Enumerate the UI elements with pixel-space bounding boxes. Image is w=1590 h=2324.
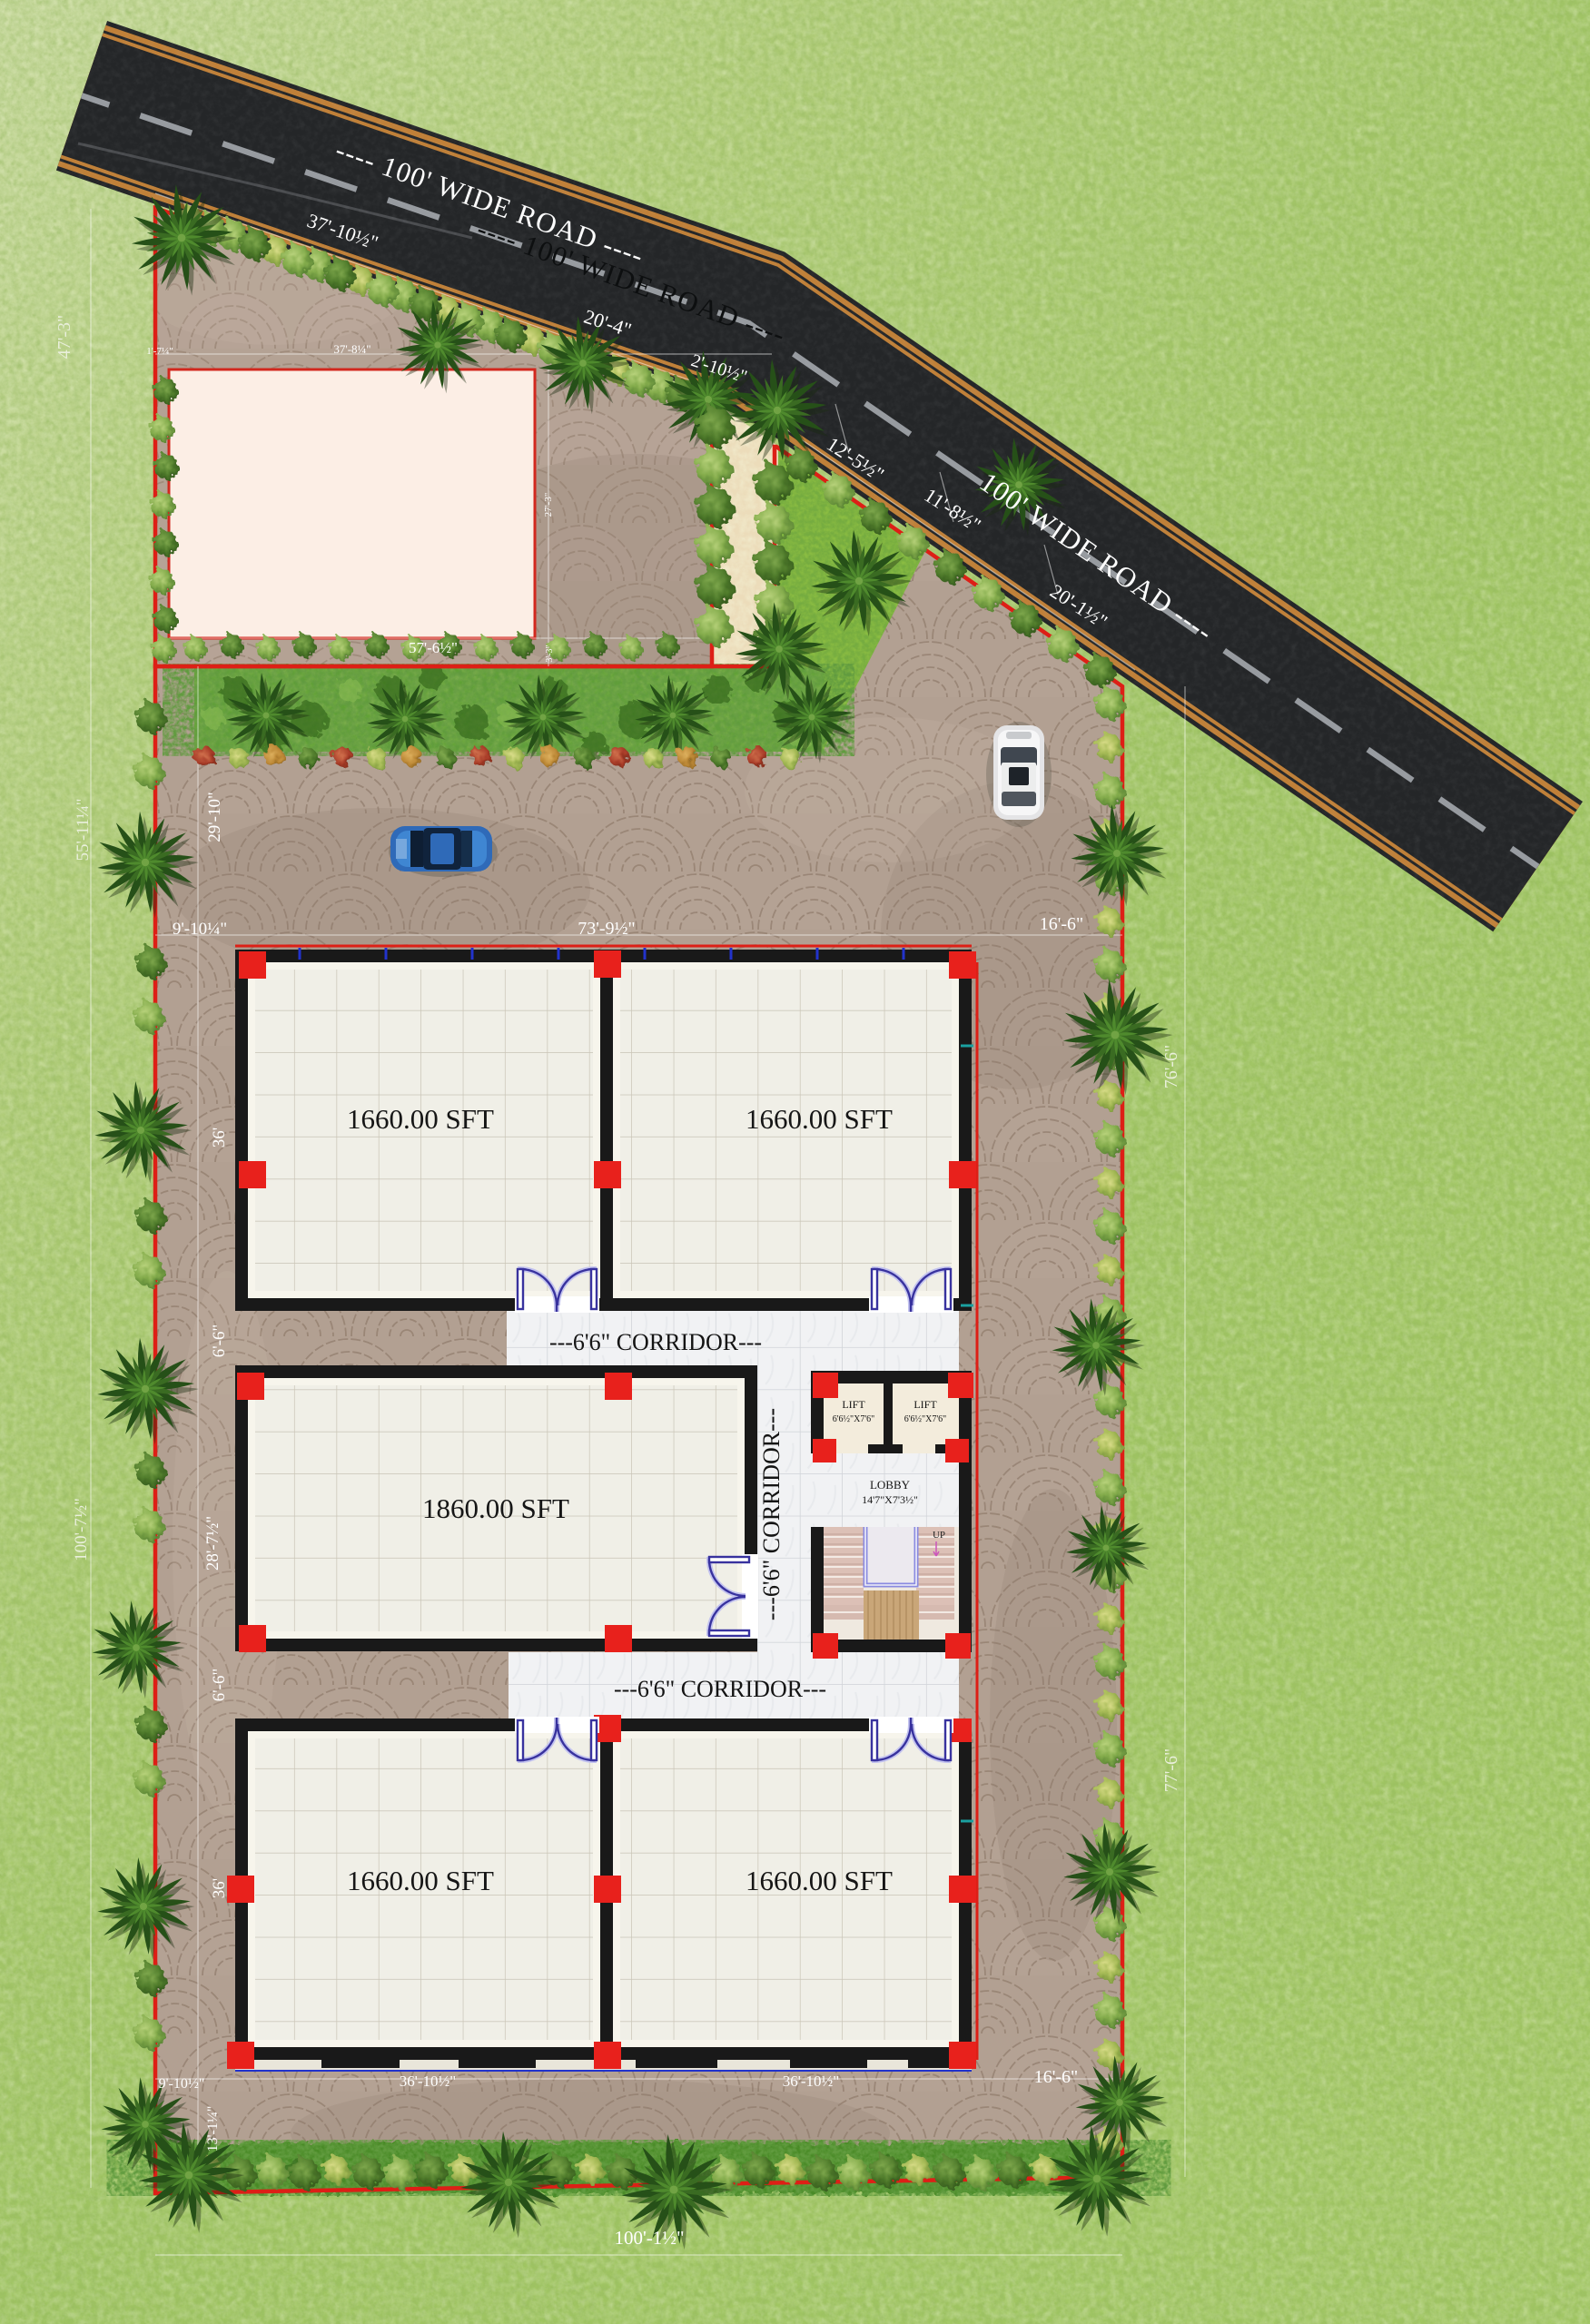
svg-text:6'6½"X7'6": 6'6½"X7'6" [904, 1414, 947, 1424]
svg-text:29'-10": 29'-10" [205, 792, 224, 842]
svg-text:14'7"X7'3½": 14'7"X7'3½" [862, 1493, 918, 1506]
svg-text:36': 36' [210, 1128, 229, 1147]
svg-text:1860.00 SFT: 1860.00 SFT [422, 1492, 569, 1524]
svg-text:13'-1¼": 13'-1¼" [205, 2106, 221, 2152]
svg-text:100'-7½": 100'-7½" [72, 1498, 91, 1561]
svg-text:36'-10½": 36'-10½" [783, 2073, 839, 2090]
svg-text:77'-6": 77'-6" [1161, 1748, 1181, 1792]
svg-text:55'-11¼": 55'-11¼" [74, 798, 93, 861]
svg-text:27'-3": 27'-3" [543, 493, 554, 517]
svg-text:---6'6" CORRIDOR---: ---6'6" CORRIDOR--- [758, 1408, 785, 1620]
svg-text:100'-1½": 100'-1½" [614, 2227, 684, 2249]
svg-text:16'-6": 16'-6" [1034, 2067, 1078, 2087]
svg-text:28'-7½": 28'-7½" [203, 1516, 222, 1571]
svg-text:1660.00 SFT: 1660.00 SFT [347, 1865, 494, 1896]
svg-text:47'-3": 47'-3" [54, 315, 74, 359]
svg-text:9'-10½": 9'-10½" [159, 2076, 205, 2092]
svg-text:1660.00 SFT: 1660.00 SFT [347, 1103, 494, 1135]
svg-text:9'-10¼": 9'-10¼" [173, 920, 227, 939]
svg-text:---6'6" CORRIDOR---: ---6'6" CORRIDOR--- [614, 1676, 826, 1702]
svg-text:6'6½"X7'6": 6'6½"X7'6" [833, 1414, 875, 1424]
svg-text:LIFT: LIFT [842, 1398, 865, 1411]
svg-text:UP: UP [933, 1530, 945, 1541]
svg-text:---6'6" CORRIDOR---: ---6'6" CORRIDOR--- [549, 1329, 762, 1355]
svg-text:36'-10½": 36'-10½" [400, 2073, 456, 2090]
svg-text:36': 36' [210, 1878, 229, 1898]
svg-text:1660.00 SFT: 1660.00 SFT [746, 1103, 893, 1135]
svg-text:3'-3": 3'-3" [545, 645, 555, 662]
svg-text:76'-6": 76'-6" [1161, 1045, 1181, 1088]
svg-text:73'-9½": 73'-9½" [578, 919, 635, 939]
svg-text:37'-8¼": 37'-8¼" [333, 342, 370, 356]
svg-text:6'-6": 6'-6" [210, 1669, 229, 1702]
svg-text:6'-6": 6'-6" [210, 1324, 229, 1358]
svg-text:1'-7¼": 1'-7¼" [146, 346, 173, 357]
svg-text:1660.00 SFT: 1660.00 SFT [746, 1865, 893, 1896]
svg-text:LOBBY: LOBBY [870, 1478, 911, 1492]
svg-text:57'-6½": 57'-6½" [409, 639, 458, 656]
svg-text:16'-6": 16'-6" [1040, 914, 1083, 934]
svg-text:LIFT: LIFT [914, 1398, 937, 1411]
